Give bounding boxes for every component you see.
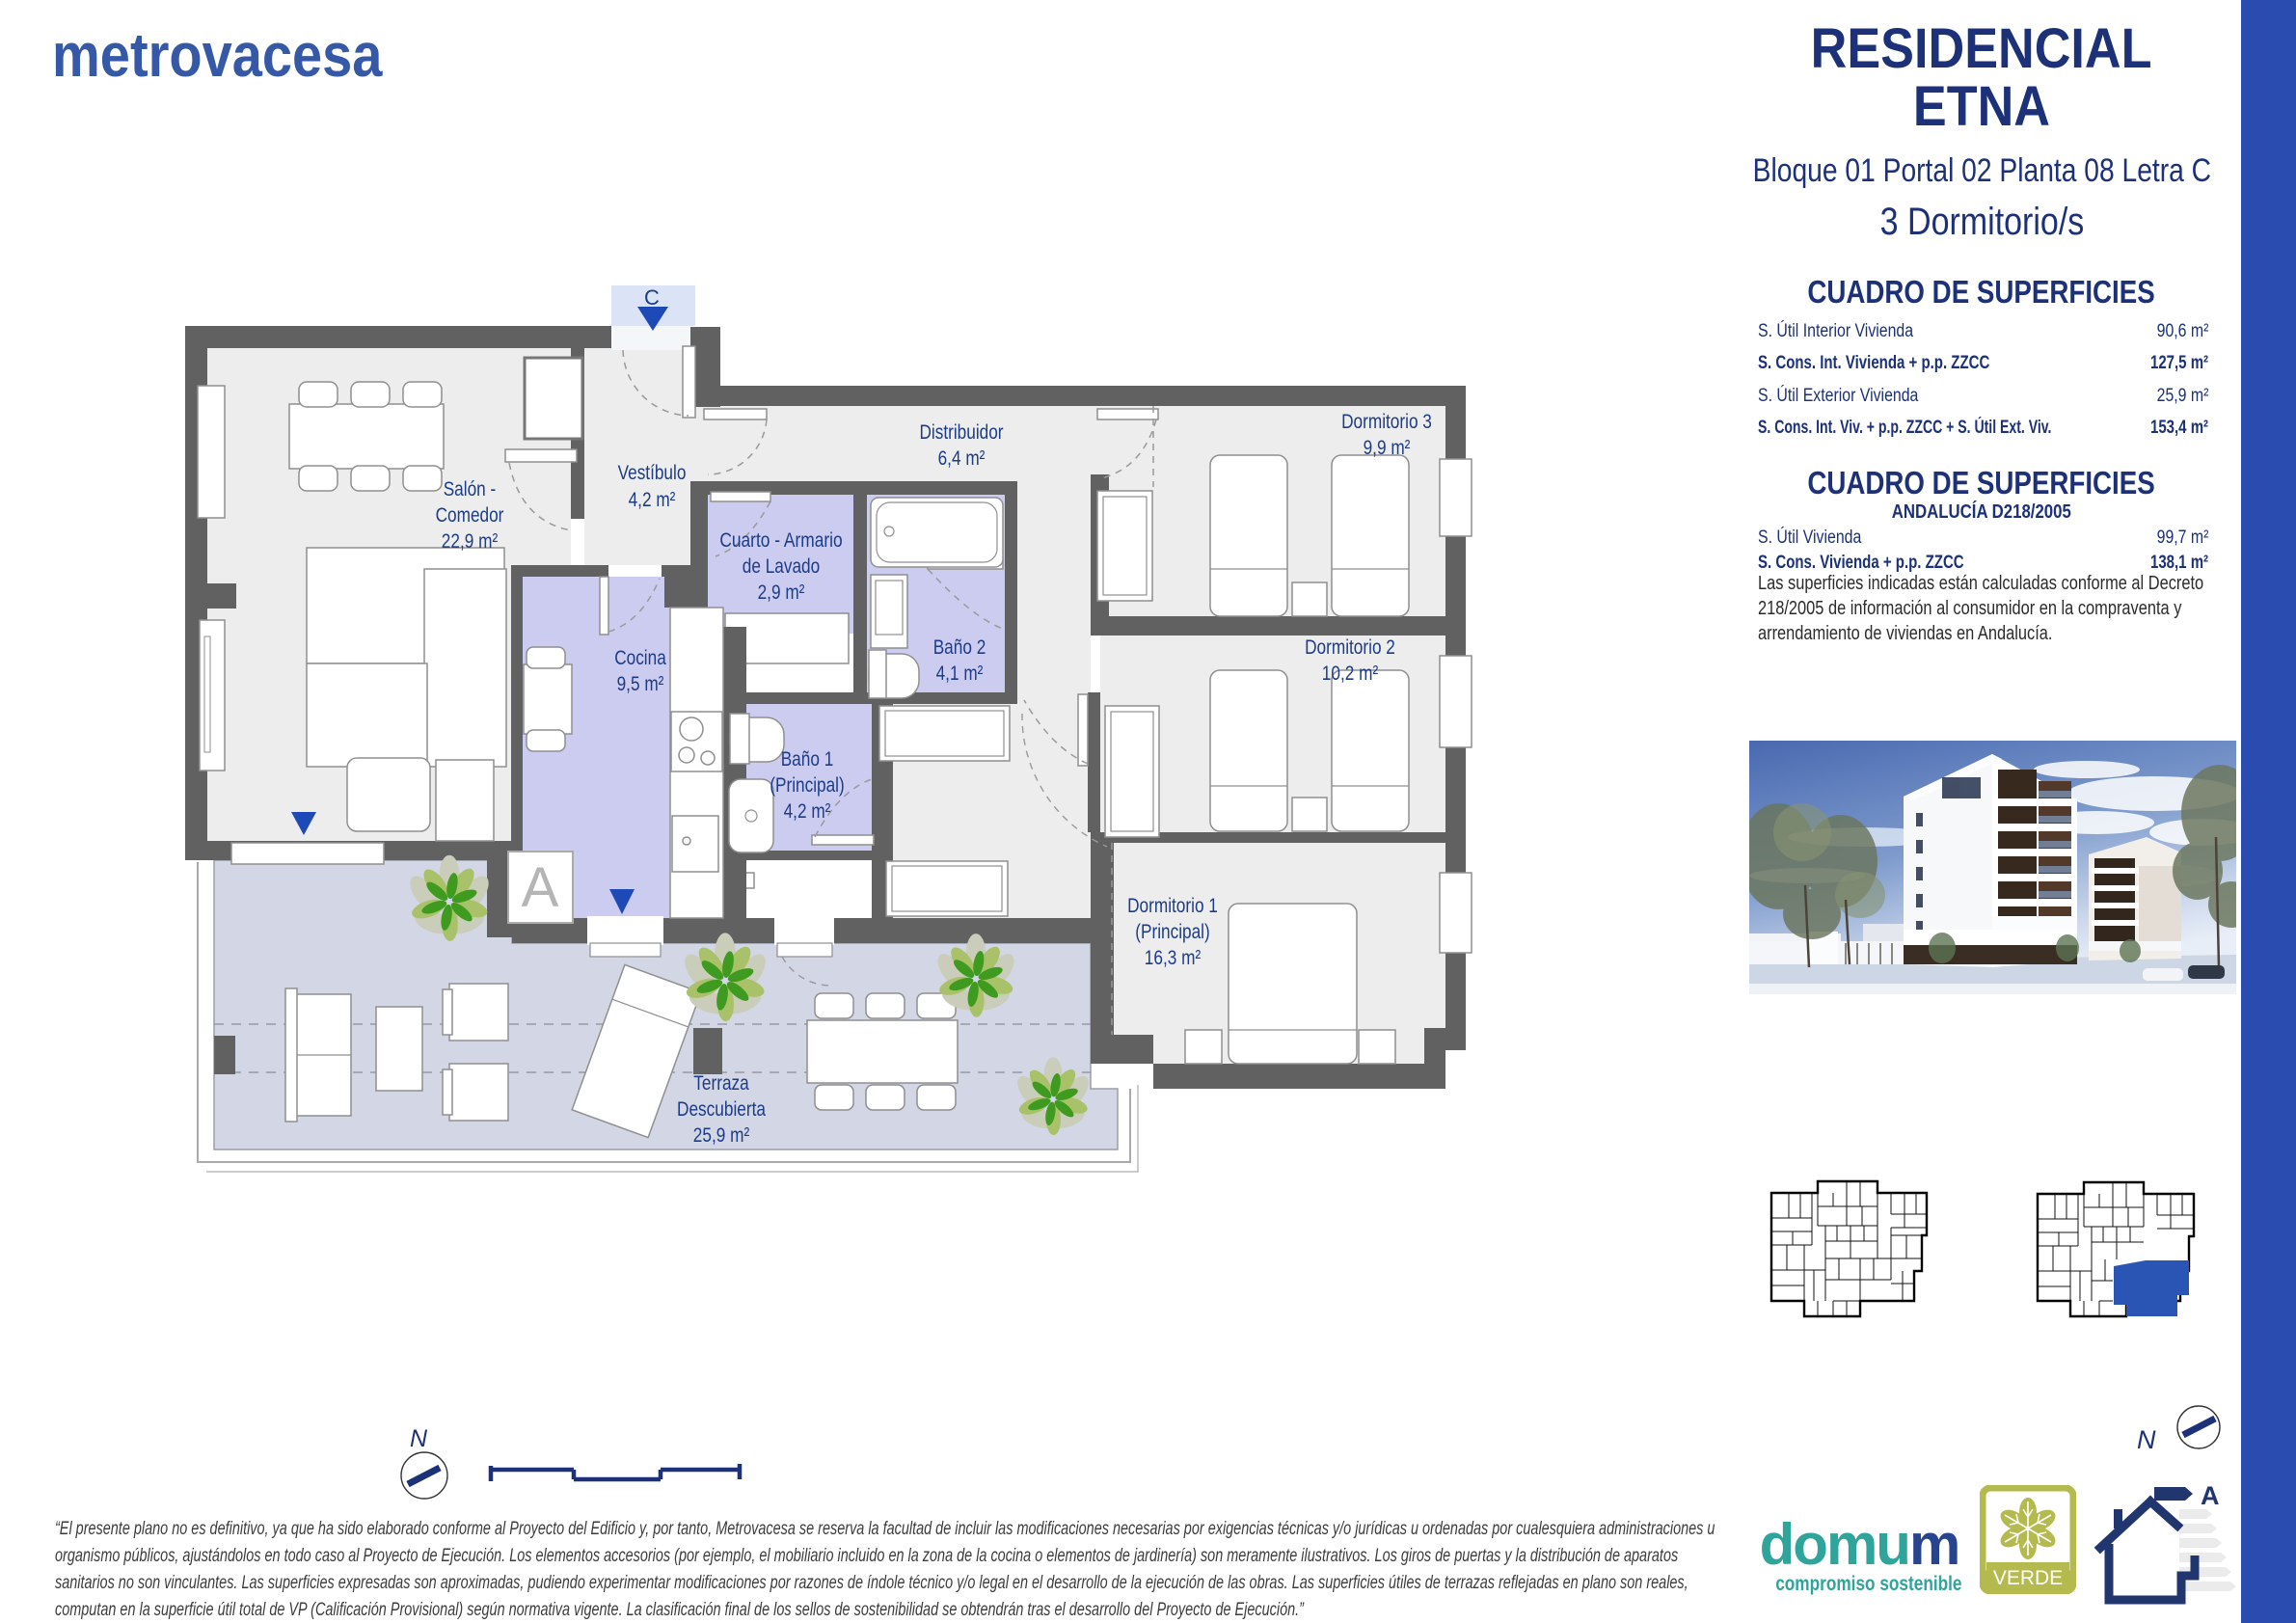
svg-text:(Principal): (Principal) <box>1135 921 1210 943</box>
svg-text:Distribuidor: Distribuidor <box>919 421 1003 444</box>
svg-text:Comedor: Comedor <box>436 504 504 527</box>
svg-text:Salón -: Salón - <box>444 478 497 500</box>
svg-text:Cuarto - Armario: Cuarto - Armario <box>719 529 842 552</box>
svg-text:2,9 m²: 2,9 m² <box>758 582 805 604</box>
svg-text:Baño 2: Baño 2 <box>933 636 986 659</box>
svg-text:C: C <box>644 285 660 310</box>
svg-text:Cocina: Cocina <box>614 647 666 669</box>
svg-text:9,9 m²: 9,9 m² <box>1364 437 1411 459</box>
svg-text:6,4 m²: 6,4 m² <box>938 447 986 470</box>
svg-text:Dormitorio 2: Dormitorio 2 <box>1305 636 1395 659</box>
svg-text:Descubierta: Descubierta <box>677 1098 766 1121</box>
svg-text:Dormitorio 1: Dormitorio 1 <box>1127 895 1218 917</box>
svg-text:9,5 m²: 9,5 m² <box>617 673 664 695</box>
svg-text:25,9 m²: 25,9 m² <box>693 1124 749 1147</box>
svg-text:de Lavado: de Lavado <box>743 555 820 578</box>
svg-text:Baño 1: Baño 1 <box>781 748 834 771</box>
svg-text:VERDE: VERDE <box>1993 1567 2063 1589</box>
svg-text:Vestíbulo: Vestíbulo <box>618 462 687 484</box>
svg-text:(Principal): (Principal) <box>770 774 845 797</box>
svg-text:16,3 m²: 16,3 m² <box>1145 947 1201 969</box>
svg-text:22,9 m²: 22,9 m² <box>442 530 498 553</box>
svg-text:4,2 m²: 4,2 m² <box>629 489 676 511</box>
svg-text:4,2 m²: 4,2 m² <box>784 800 831 823</box>
svg-text:A: A <box>522 856 559 919</box>
svg-text:4,1 m²: 4,1 m² <box>936 663 984 685</box>
svg-text:A: A <box>2201 1481 2220 1510</box>
svg-text:10,2 m²: 10,2 m² <box>1322 663 1378 685</box>
svg-text:Terraza: Terraza <box>693 1072 749 1095</box>
svg-text:Dormitorio 3: Dormitorio 3 <box>1341 411 1432 433</box>
